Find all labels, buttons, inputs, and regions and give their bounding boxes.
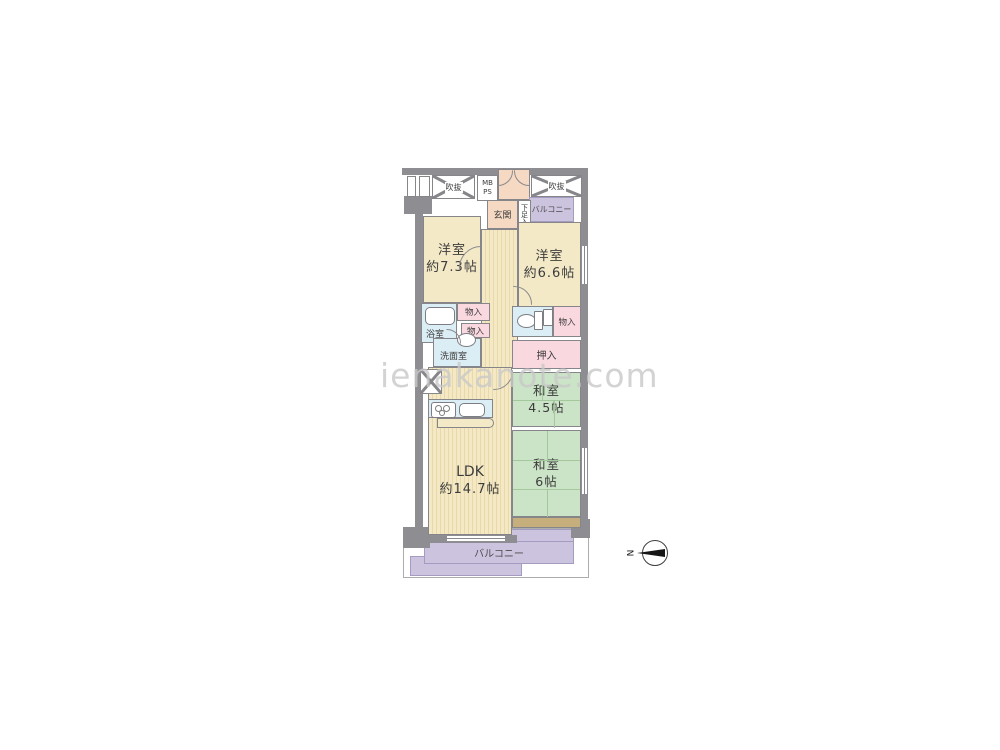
room-japanese-4-5: 和室 4.5帖 [512, 372, 581, 427]
fukinuke-right-label: 吹抜 [548, 181, 566, 192]
storage-1-label: 物入 [465, 306, 482, 318]
pipe-space-hatch [420, 369, 442, 394]
oshiire-closet: 押入 [512, 340, 581, 369]
pillar-bottom-left [403, 527, 430, 548]
storage-1: 物入 [457, 303, 490, 321]
compass-n-label: N [626, 550, 636, 557]
void-fukinuke-right: 吹抜 [531, 175, 582, 197]
toilet-room [512, 306, 553, 337]
sink-icon [459, 403, 485, 417]
entry-genkan: 玄関 [487, 200, 518, 229]
storage-3-label: 物入 [558, 316, 575, 328]
window-west2-right [582, 246, 587, 284]
japanese2-size: 6帖 [535, 474, 557, 490]
mb-label: MB [482, 179, 493, 187]
japanese1-size: 4.5帖 [528, 400, 564, 416]
kitchen-counter-ledge [437, 418, 494, 428]
ps-label: PS [483, 188, 492, 196]
ldk-size: 約14.7帖 [440, 482, 501, 499]
toilet-shelf-icon [543, 309, 553, 326]
engawa-wood-strip [512, 517, 581, 528]
compass-needle-icon [637, 549, 665, 557]
toilet-tank-icon [534, 311, 543, 330]
window-box-2 [419, 176, 430, 197]
window-japanese2-right [582, 448, 587, 494]
window-ldk-bottom [447, 536, 505, 541]
wall-top [402, 168, 588, 175]
oshiire-label: 押入 [537, 347, 557, 362]
hatch-x-icon [421, 370, 441, 393]
floor-plan-page: バルコニー 吹抜 MB PS 吹抜 バルコニー 玄関 [0, 0, 1000, 750]
western2-name: 洋室 [535, 249, 563, 266]
compass: N [626, 536, 674, 570]
storage-3: 物入 [553, 306, 581, 337]
genkan-label: 玄関 [493, 208, 511, 221]
window-box-1 [407, 176, 416, 197]
bathtub-icon [425, 307, 455, 325]
western2-size: 約6.6帖 [524, 266, 576, 283]
japanese1-name: 和室 [533, 383, 560, 399]
kitchen-counter [428, 399, 493, 418]
balcony-top: バルコニー [529, 197, 574, 222]
stove-icon [431, 402, 456, 418]
washroom-label: 洗面室 [440, 349, 467, 362]
meter-pipe-space: MB PS [477, 175, 498, 201]
balcony-top-label: バルコニー [532, 204, 572, 215]
room-japanese-6: 和室 6帖 [512, 430, 581, 517]
fukinuke-left-label: 吹抜 [445, 182, 463, 193]
ldk-name: LDK [456, 463, 484, 481]
void-fukinuke-left: 吹抜 [432, 175, 475, 199]
